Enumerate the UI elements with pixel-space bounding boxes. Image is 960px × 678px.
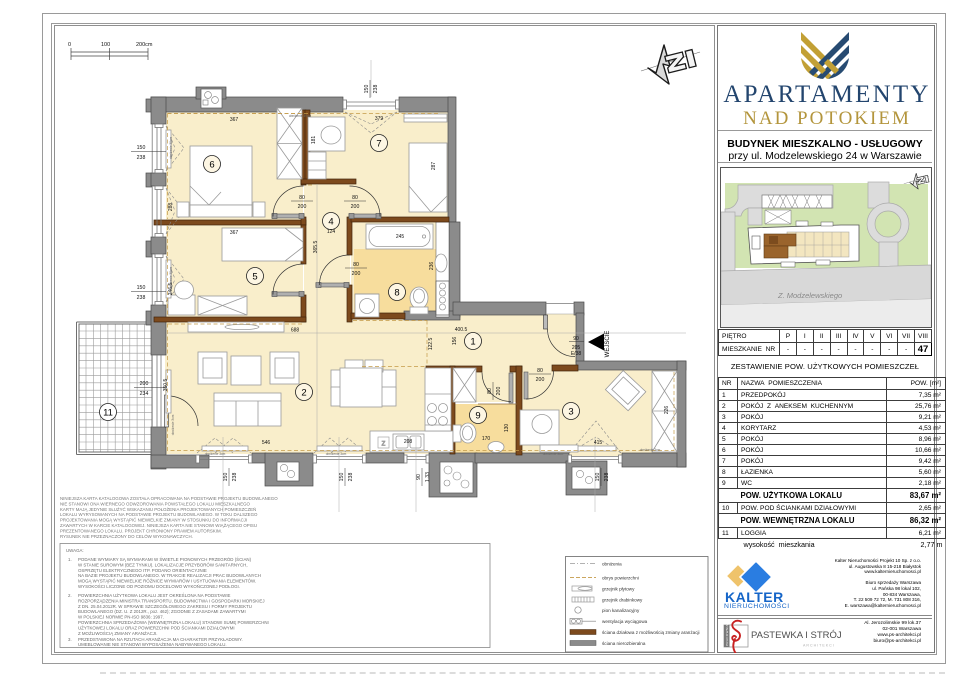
svg-text:0: 0: [68, 42, 71, 48]
svg-text:688: 688: [291, 328, 300, 334]
svg-text:150: 150: [364, 85, 370, 94]
svg-text:80: 80: [299, 195, 305, 201]
svg-text:170: 170: [482, 436, 491, 442]
svg-text:288: 288: [168, 203, 174, 212]
svg-text:200: 200: [351, 204, 360, 210]
svg-text:WEJŚCIE: WEJŚCIE: [603, 331, 611, 358]
svg-text:UWAGA:: UWAGA:: [66, 548, 84, 553]
svg-text:122.5: 122.5: [428, 338, 434, 351]
svg-text:367: 367: [230, 117, 239, 123]
svg-text:NINIEJSZA KARTA KATALOGOWA ZOS: NINIEJSZA KARTA KATALOGOWA ZOSTAŁA OPRAC…: [60, 496, 278, 501]
svg-text:ściana nierozbieralna: ściana nierozbieralna: [602, 641, 646, 646]
svg-text:POWIERZCHNIA SPRZEDAŻOWA (WEWN: POWIERZCHNIA SPRZEDAŻOWA (WEWNĘTRZNA LOK…: [78, 620, 269, 625]
svg-text:obniżenie 30cm: obniżenie 30cm: [289, 114, 312, 118]
svg-text:150: 150: [137, 145, 146, 151]
svg-text:RYSUNEK NIE PRZEZNACZONY DO CE: RYSUNEK NIE PRZEZNACZONY DO CELÓW WYKONA…: [60, 534, 193, 539]
svg-text:287: 287: [431, 162, 437, 171]
svg-text:PROJEKTOWANIA MOGĄ WYSTĄPIĆ NI: PROJEKTOWANIA MOGĄ WYSTĄPIĆ NIEWIELKIE Z…: [60, 518, 247, 523]
svg-text:obniżenie 3cm: obniżenie 3cm: [543, 452, 564, 456]
svg-text:KARTY MAJĄ JEDYNIE SŁUŻYĆ WSKA: KARTY MAJĄ JEDYNIE SŁUŻYĆ WSKAZANIU POŁO…: [60, 507, 256, 512]
svg-text:150: 150: [339, 473, 345, 482]
svg-text:415: 415: [594, 440, 603, 446]
svg-text:400.5: 400.5: [455, 327, 468, 333]
svg-text:PREZENTOWANEGO LOKALU. PROJEKT: PREZENTOWANEGO LOKALU. PROJEKT CHRONIONY…: [60, 528, 222, 533]
svg-text:grzejnik drabinkowy: grzejnik drabinkowy: [602, 597, 643, 602]
svg-text:grzejnik płytowy: grzejnik płytowy: [602, 586, 635, 591]
svg-text:PRACOWNIA: PRACOWNIA: [725, 624, 729, 646]
svg-text:156: 156: [452, 337, 458, 346]
svg-text:7: 7: [376, 138, 381, 149]
svg-text:238: 238: [348, 473, 354, 482]
svg-text:208: 208: [404, 439, 413, 445]
svg-text:236: 236: [429, 262, 435, 271]
svg-text:238: 238: [232, 473, 238, 482]
svg-text:245: 245: [396, 234, 405, 240]
svg-text:Z DN. 25.04.2012R. W SPRAWIE S: Z DN. 25.04.2012R. W SPRAWIE SZCZEGÓŁOWE…: [78, 604, 252, 609]
svg-text:obrys powierzchni: obrys powierzchni: [602, 575, 639, 580]
svg-text:238: 238: [137, 155, 146, 161]
svg-text:obniżenie 3cm: obniżenie 3cm: [640, 448, 661, 452]
svg-text:200cm: 200cm: [136, 42, 153, 48]
svg-text:2: 2: [301, 387, 306, 398]
svg-text:379: 379: [375, 116, 384, 122]
svg-text:LOKALU WYRYSOWANYCH NA PODSTAW: LOKALU WYRYSOWANYCH NA PODSTAWIE PROJEKT…: [60, 512, 258, 517]
svg-text:124: 124: [327, 229, 336, 235]
svg-text:9: 9: [475, 410, 480, 421]
svg-text:150: 150: [137, 285, 146, 291]
svg-text:80: 80: [352, 195, 358, 201]
svg-text:1: 1: [470, 336, 475, 347]
svg-text:UMEBLOWANIE NIE STANOWI WYPOSA: UMEBLOWANIE NIE STANOWI WYPOSAŻENIA NABY…: [78, 642, 227, 647]
svg-text:Z MOŻLIWOŚCIĄ ZMIANY ARANŻACJI: Z MOŻLIWOŚCIĄ ZMIANY ARANŻACJI.: [78, 631, 157, 636]
svg-text:130: 130: [504, 424, 510, 433]
svg-text:wentylacja wyciągowa: wentylacja wyciągowa: [602, 619, 648, 624]
svg-text:350.5: 350.5: [163, 379, 169, 392]
svg-text:200: 200: [298, 204, 307, 210]
svg-text:WYSOKOŚCI LICZONE OD POZIOMU D: WYSOKOŚCI LICZONE OD POZIOMU DOCELOWO WY…: [78, 584, 240, 589]
svg-text:E/38: E/38: [571, 351, 582, 357]
svg-text:90: 90: [573, 336, 579, 342]
svg-text:80: 80: [537, 368, 543, 374]
svg-text:367: 367: [230, 230, 239, 236]
svg-text:80: 80: [353, 262, 359, 268]
svg-text:238: 238: [137, 295, 146, 301]
svg-text:90: 90: [416, 474, 422, 480]
svg-text:200: 200: [140, 381, 149, 387]
svg-text:365.5: 365.5: [313, 241, 319, 254]
svg-text:obniżenia: obniżenia: [602, 561, 622, 566]
svg-text:ZAWARTYCH W KARCIE KATALOGOWEJ: ZAWARTYCH W KARCIE KATALOGOWEJ. NINIEJSZ…: [60, 523, 257, 528]
svg-text:OSPRZĘTU ELEKTRYCZNEGO ITP. PO: OSPRZĘTU ELEKTRYCZNEGO ITP. PODANO ORIEN…: [78, 568, 207, 573]
svg-text:PODANE WYMIARY SĄ WYMIARAMI W: PODANE WYMIARY SĄ WYMIARAMI W ŚWIETLE PI…: [78, 557, 252, 562]
svg-text:181: 181: [311, 136, 317, 145]
svg-text:100: 100: [101, 42, 110, 48]
svg-text:200: 200: [496, 387, 502, 396]
svg-text:3.: 3.: [68, 637, 72, 642]
svg-text:ROZPORZĄDZENIA MINISTRA TRANSP: ROZPORZĄDZENIA MINISTRA TRANSPORTU, BUDO…: [78, 598, 265, 603]
svg-text:POWIERZCHNIA UŻYTKOWA LOKALU J: POWIERZCHNIA UŻYTKOWA LOKALU JEST OKREŚL…: [78, 593, 231, 598]
svg-text:ściana działowa z możliwością: ściana działowa z możliwością zmiany ara…: [602, 630, 700, 635]
svg-text:Z. Modzelewskiego: Z. Modzelewskiego: [777, 291, 842, 300]
svg-text:obniżenie 30cm: obniżenie 30cm: [169, 266, 173, 289]
svg-text:6: 6: [209, 159, 214, 170]
svg-text:2.: 2.: [68, 593, 72, 598]
svg-text:1.: 1.: [68, 557, 72, 562]
svg-text:NIE STANOWI ONA WIERNEGO ODWZO: NIE STANOWI ONA WIERNEGO ODWZOROWANIA PO…: [60, 501, 251, 506]
svg-text:234: 234: [140, 391, 149, 397]
svg-text:80: 80: [487, 388, 493, 394]
svg-text:5: 5: [252, 271, 257, 282]
svg-text:226: 226: [664, 406, 670, 415]
svg-text:150: 150: [223, 473, 229, 482]
svg-text:1.33: 1.33: [425, 472, 431, 482]
svg-text:8: 8: [394, 287, 399, 298]
svg-text:200: 200: [536, 377, 545, 383]
svg-text:obniżenie 30cm: obniżenie 30cm: [169, 136, 173, 159]
svg-text:238: 238: [604, 473, 610, 482]
svg-text:11: 11: [103, 407, 113, 418]
svg-text:obniżenie 3cm: obniżenie 3cm: [326, 452, 347, 456]
svg-text:W STANIE SUROWYM (BEZ TYNKU).: W STANIE SUROWYM (BEZ TYNKU). LOKALIZACJ…: [78, 562, 248, 567]
svg-text:obniżenie 3cm: obniżenie 3cm: [171, 414, 175, 435]
svg-text:200: 200: [352, 271, 361, 277]
svg-text:238: 238: [373, 85, 379, 94]
svg-text:pion kanalizacyjny: pion kanalizacyjny: [602, 608, 640, 613]
svg-text:MOGĄ WYSTĄPIĆ NIEWIELKIE RÓŻNI: MOGĄ WYSTĄPIĆ NIEWIELKIE RÓŻNICE WYMIARÓ…: [78, 579, 256, 584]
svg-text:4: 4: [328, 216, 333, 227]
svg-text:UŻYTKOWEJ LOKALU ORAZ POWIERZC: UŻYTKOWEJ LOKALU ORAZ POWIERZCHNI POD ŚC…: [78, 625, 235, 630]
svg-text:150: 150: [595, 473, 601, 482]
svg-text:Z: Z: [382, 442, 386, 448]
svg-text:W POLSKIEJ NORMIE PN-ISO 9836:: W POLSKIEJ NORMIE PN-ISO 9836: 1997.: [78, 615, 164, 620]
svg-text:546: 546: [262, 440, 271, 446]
svg-text:BUDOWLANEGO (DZ. U. Z 2012R.,: BUDOWLANEGO (DZ. U. Z 2012R., poz. 462);…: [78, 609, 246, 614]
svg-text:NA BAZIE PROJEKTU BUDOWLANEGO.: NA BAZIE PROJEKTU BUDOWLANEGO. W TRAKCIE…: [78, 573, 261, 578]
svg-text:3: 3: [568, 406, 573, 417]
svg-text:obniżenie 3cm: obniżenie 3cm: [205, 452, 226, 456]
